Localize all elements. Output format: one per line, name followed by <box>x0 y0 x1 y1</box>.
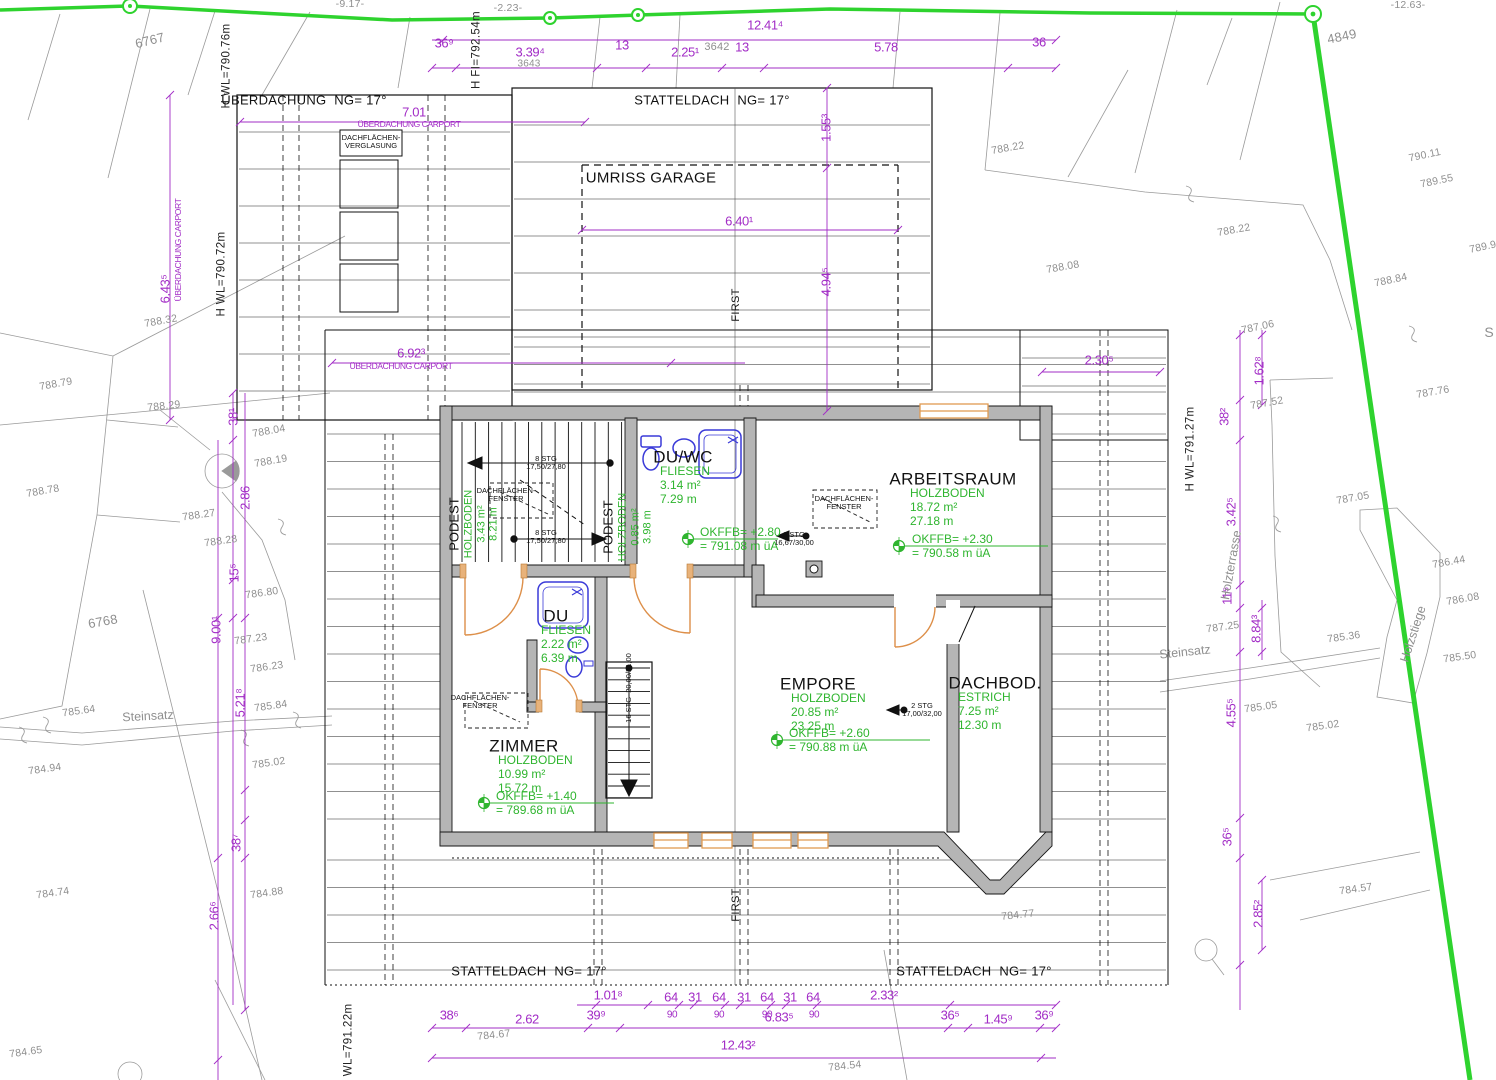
dachboden-door-leaf <box>959 606 975 642</box>
stair-treads <box>462 422 650 798</box>
room-material: HOLZBODEN <box>791 692 866 706</box>
umriss-garage-dashed-outline <box>582 165 898 388</box>
podest-block: PODESTHOLZBODEN0.85 m²3.98 m <box>602 493 655 561</box>
room-data-block: FLIESEN2.22 m²6.39 m <box>541 624 591 666</box>
column-post <box>810 565 818 573</box>
building-walls <box>440 406 1052 894</box>
room-perimeter: 12.30 m <box>958 719 1011 733</box>
room-area: 10.99 m² <box>498 768 573 782</box>
room-data-block: ESTRICH7.25 m²12.30 m <box>958 691 1011 733</box>
okffb-l1: OKFFB= +1.40 <box>496 790 577 804</box>
okffb-l1: OKFFB= +2.30 <box>912 533 993 547</box>
okffb-level-label: OKFFB= +2.80= 791.08 m üA <box>700 526 781 554</box>
room-data-line: HOLZBODEN <box>463 490 476 558</box>
room-material: ESTRICH <box>958 691 1011 705</box>
room-perimeter: 27.18 m <box>910 515 985 529</box>
carport-glazing <box>340 130 402 312</box>
room-area: 3.14 m² <box>660 479 710 493</box>
okffb-l2: = 790.58 m üA <box>912 547 993 561</box>
dimension-lines <box>166 36 1266 1080</box>
room-data-line: 3.43 m² <box>475 490 488 558</box>
room-material: HOLZBODEN <box>498 754 573 768</box>
okffb-l1: OKFFB= +2.60 <box>789 727 870 741</box>
room-material: FLIESEN <box>541 624 591 638</box>
podest-block: PODESTHOLZBODEN3.43 m²8.21 m <box>448 490 501 558</box>
room-data-line: 3.98 m <box>642 493 655 561</box>
room-perimeter: 6.39 m <box>541 652 591 666</box>
room-area: 18.72 m² <box>910 501 985 515</box>
room-area: 2.22 m² <box>541 638 591 652</box>
room-name: PODEST <box>448 490 463 558</box>
okffb-l1: OKFFB= +2.80 <box>700 526 781 540</box>
okffb-level-label: OKFFB= +1.40= 789.68 m üA <box>496 790 577 818</box>
okffb-l2: = 789.68 m üA <box>496 804 577 818</box>
washbasin-icon <box>673 439 695 457</box>
okffb-level-label: OKFFB= +2.60= 790.88 m üA <box>789 727 870 755</box>
okffb-l2: = 790.88 m üA <box>789 741 870 755</box>
room-data-line: 8.21 m <box>488 490 501 558</box>
room-area: 7.25 m² <box>958 705 1011 719</box>
okffb-l2: = 791.08 m üA <box>700 540 781 554</box>
room-material: HOLZBODEN <box>910 487 985 501</box>
room-data-line: HOLZBODEN <box>617 493 630 561</box>
okffb-level-label: OKFFB= +2.30= 790.58 m üA <box>912 533 993 561</box>
room-name: PODEST <box>602 493 617 561</box>
room-area: 20.85 m² <box>791 706 866 720</box>
floor-plan-canvas: 12.41⁴36⁹3.39⁴132.25¹135.78367.01ÜBERDAC… <box>0 0 1496 1080</box>
wc-toilet-icon <box>641 436 661 447</box>
room-data-block: FLIESEN3.14 m²7.29 m <box>660 465 710 507</box>
room-data-block: HOLZBODEN18.72 m²27.18 m <box>910 487 985 529</box>
room-material: FLIESEN <box>660 465 710 479</box>
room-data-line: 0.85 m² <box>629 493 642 561</box>
room-perimeter: 7.29 m <box>660 493 710 507</box>
shower-icon <box>538 582 588 628</box>
